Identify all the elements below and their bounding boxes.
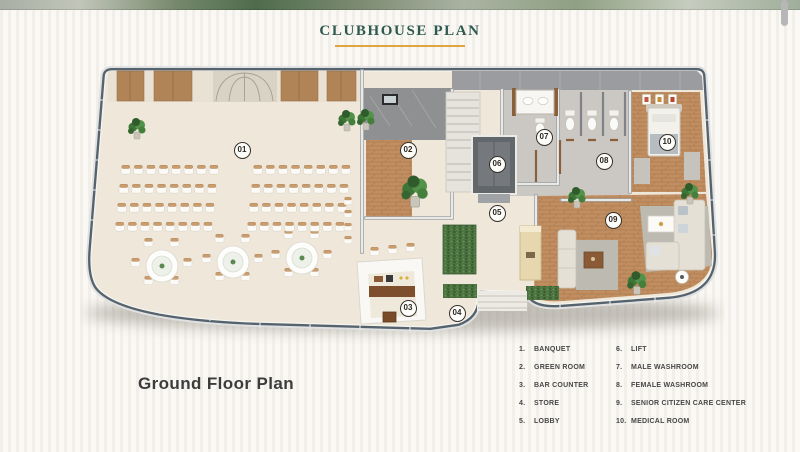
- legend: 1.BANQUET2.GREEN ROOM3.BAR COUNTER4.STOR…: [519, 346, 746, 425]
- page: CLUBHOUSE PLAN: [0, 0, 800, 452]
- page-title-block: CLUBHOUSE PLAN: [0, 23, 800, 47]
- title-underline: [335, 45, 465, 47]
- room-marker-01: 01: [234, 142, 251, 159]
- room-marker-02: 02: [400, 142, 417, 159]
- legend-item: 9.SENIOR CITIZEN CARE CENTER: [616, 400, 746, 407]
- floor-plan-label: Ground Floor Plan: [138, 374, 294, 394]
- legend-item: 3.BAR COUNTER: [519, 382, 601, 389]
- legend-item: 4.STORE: [519, 400, 601, 407]
- banquet-stage-wall: [108, 71, 362, 102]
- bar-counter: [357, 258, 426, 324]
- room-marker-08: 08: [596, 153, 613, 170]
- top-photo-strip: [0, 0, 800, 10]
- legend-item: 1.BANQUET: [519, 346, 601, 353]
- room-marker-04: 04: [449, 305, 466, 322]
- room-marker-07: 07: [536, 129, 553, 146]
- room-marker-10: 10: [659, 134, 676, 151]
- legend-item: 7.MALE WASHROOM: [616, 364, 746, 371]
- legend-item: 2.GREEN ROOM: [519, 364, 601, 371]
- room-marker-05: 05: [489, 205, 506, 222]
- room-marker-03: 03: [400, 300, 417, 317]
- legend-item: 8.FEMALE WASHROOM: [616, 382, 746, 389]
- legend-item: 6.LIFT: [616, 346, 746, 353]
- page-title: CLUBHOUSE PLAN: [0, 23, 800, 40]
- room-marker-06: 06: [489, 156, 506, 173]
- room-marker-09: 09: [605, 212, 622, 229]
- legend-item: 10.MEDICAL ROOM: [616, 418, 746, 425]
- legend-item: 5.LOBBY: [519, 418, 601, 425]
